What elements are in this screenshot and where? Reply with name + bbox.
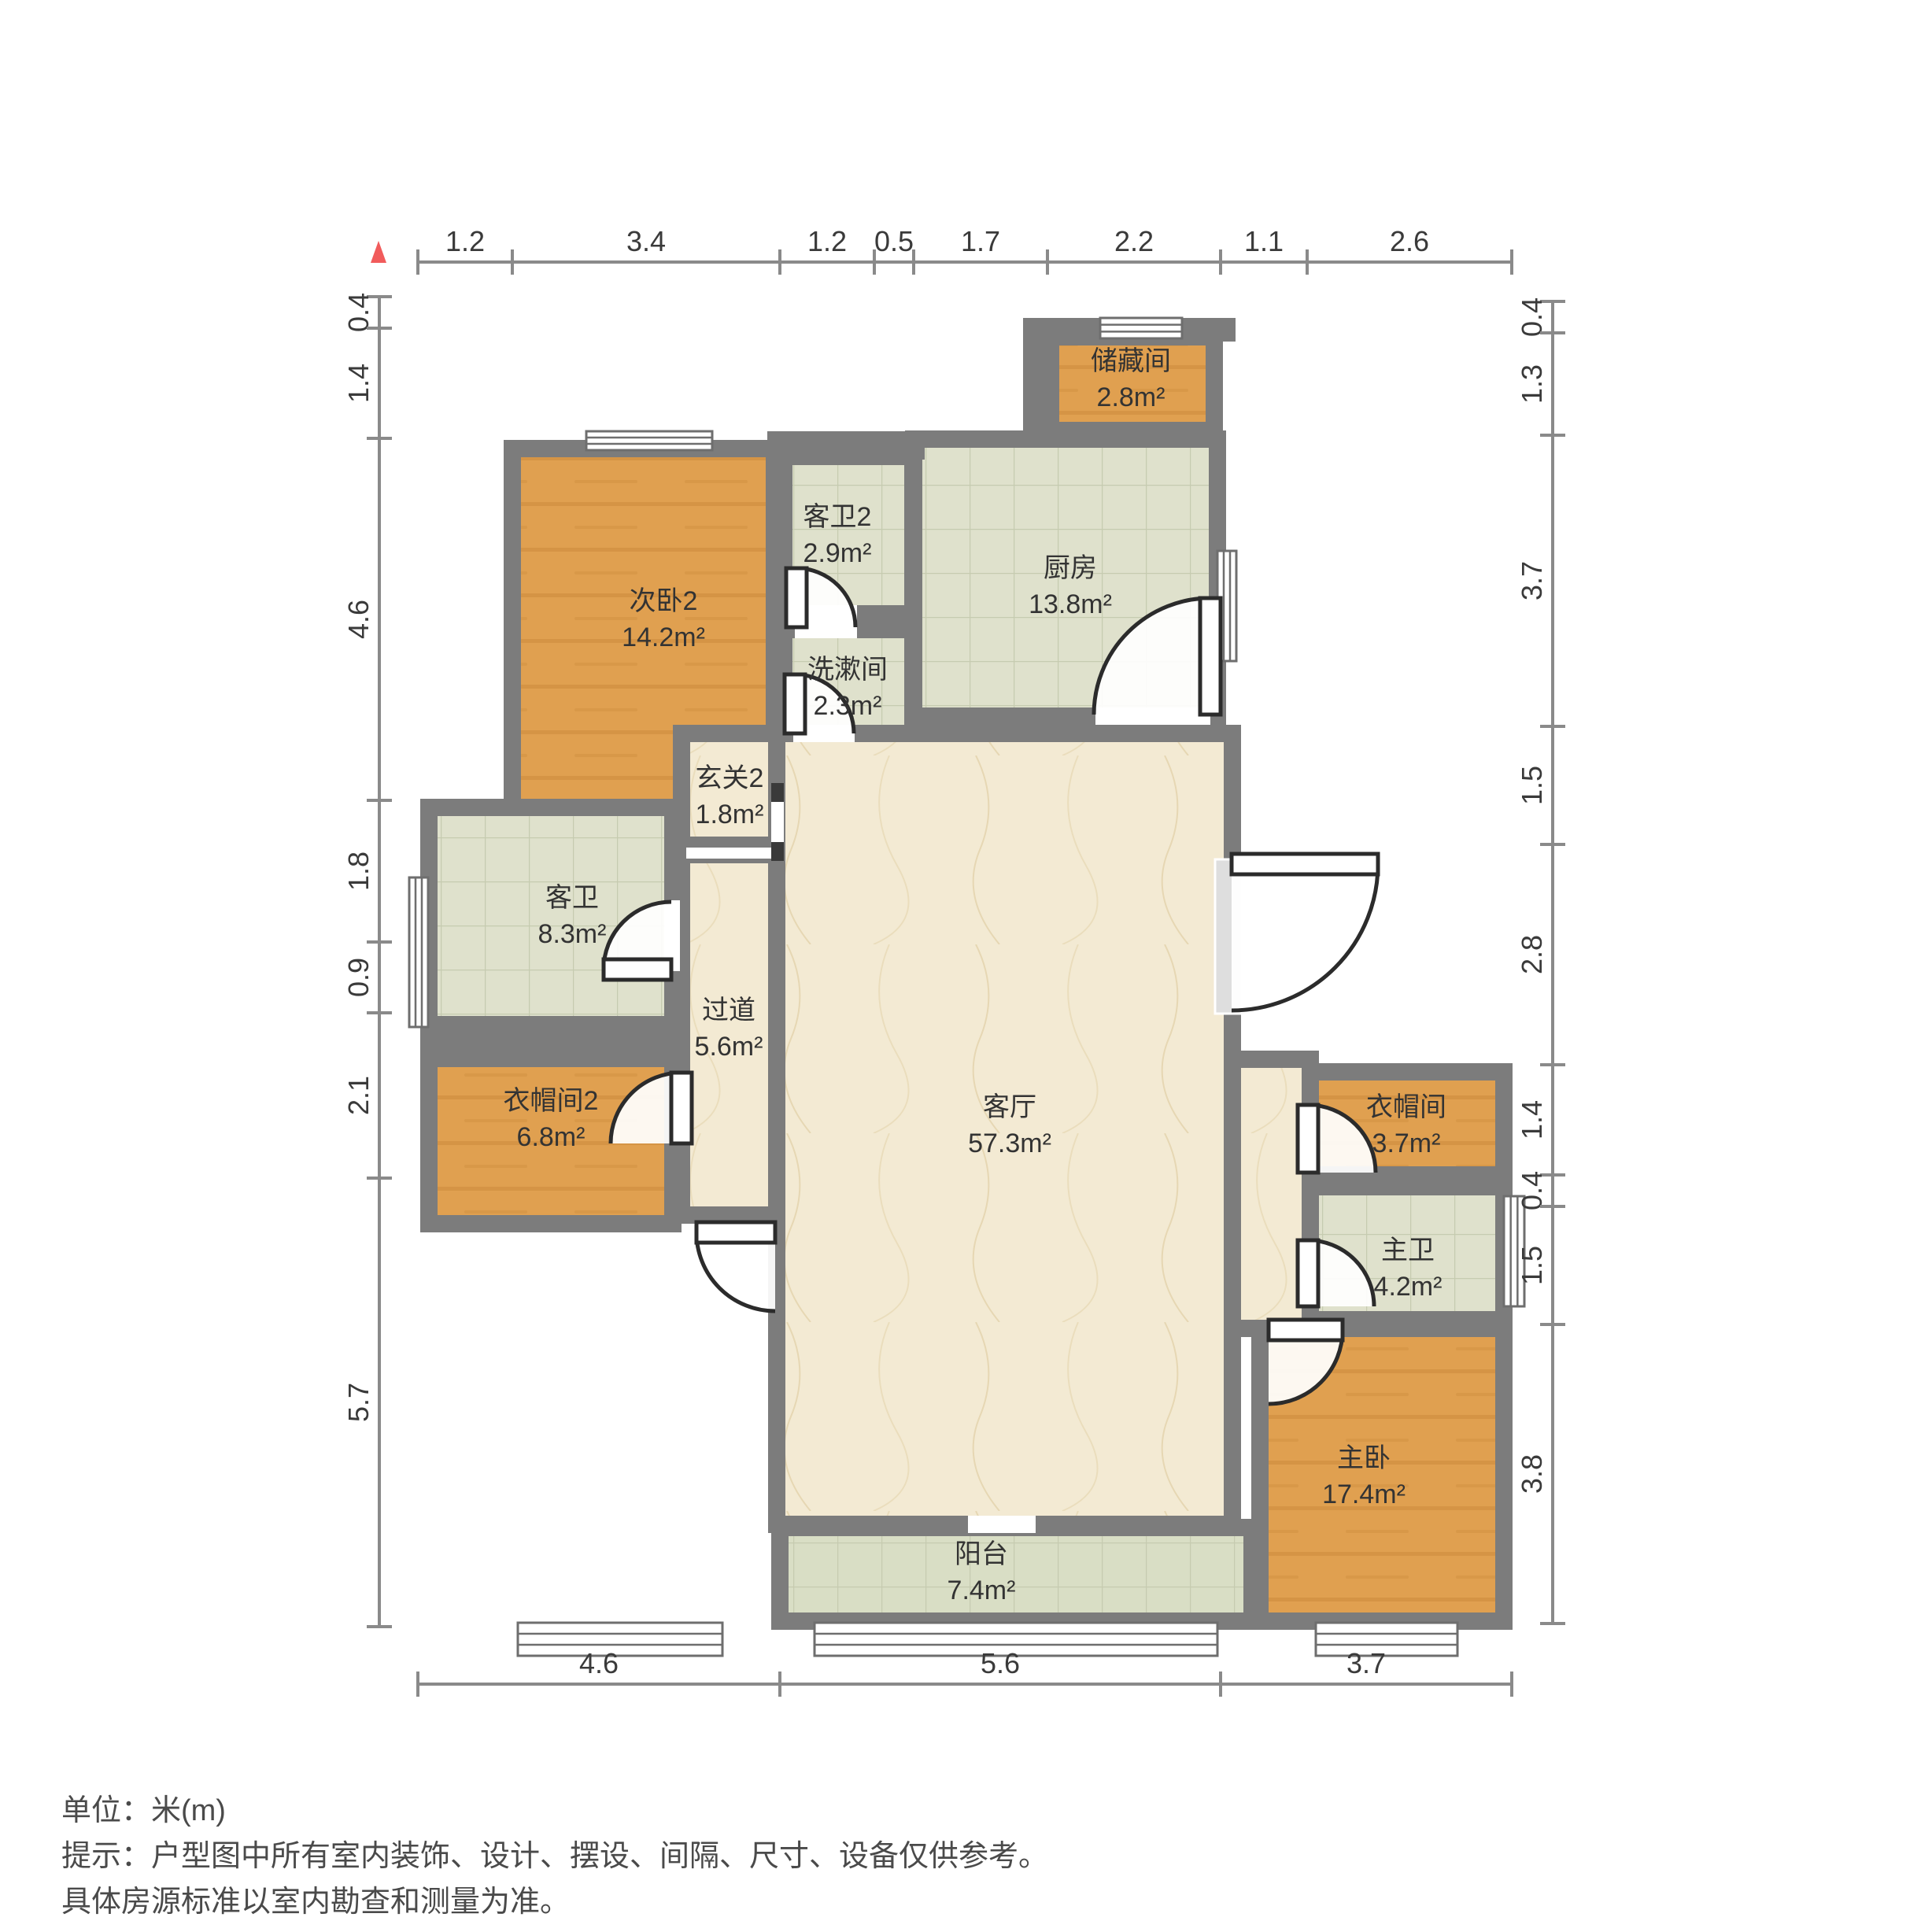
room-name-guodao: 过道 xyxy=(702,996,755,1025)
dim-label: 1.1 xyxy=(1244,225,1284,257)
room-area-xishujian: 2.3m² xyxy=(814,691,882,721)
dim-label: 3.8 xyxy=(1516,1454,1548,1494)
dim-label: 0.4 xyxy=(1516,1171,1548,1210)
room-name-xishujian: 洗漱间 xyxy=(807,655,888,685)
dim-chain-top: 1.23.41.20.51.72.21.12.6 xyxy=(418,225,1512,275)
room-area-kewei2: 2.9m² xyxy=(803,538,872,568)
room-yangtai xyxy=(780,1527,1252,1621)
dim-label: 1.4 xyxy=(342,364,375,403)
room-name-ciwo2: 次卧2 xyxy=(630,586,698,616)
window xyxy=(1100,318,1182,338)
room-name-kewei2: 客卫2 xyxy=(803,502,872,532)
floor-plan-svg: 次卧214.2m²客卫22.9m²洗漱间2.3m²储藏间2.8m²厨房13.8m… xyxy=(0,0,1932,1932)
dim-label: 0.4 xyxy=(342,293,375,332)
dim-label: 5.7 xyxy=(342,1383,375,1422)
window xyxy=(1316,1623,1457,1656)
dim-label: 2.2 xyxy=(1114,225,1154,257)
room-area-kewei: 8.3m² xyxy=(538,919,607,949)
dim-label: 5.6 xyxy=(981,1647,1020,1679)
dim-label: 2.1 xyxy=(342,1076,375,1115)
dim-label: 0.5 xyxy=(874,225,914,257)
dim-label: 1.4 xyxy=(1516,1100,1548,1140)
disclaimer-block: 单位：米(m) 提示：户型图中所有室内装饰、设计、摆设、间隔、尺寸、设备仅供参考… xyxy=(61,1788,1048,1925)
room-area-yimaojian: 3.7m² xyxy=(1372,1129,1441,1158)
dim-chain-right: 0.41.33.71.52.81.40.41.53.8 xyxy=(1516,297,1565,1624)
floor-plan-page: 次卧214.2m²客卫22.9m²洗漱间2.3m²储藏间2.8m²厨房13.8m… xyxy=(0,0,1932,1932)
room-name-yangtai: 阳台 xyxy=(955,1539,1008,1569)
room-area-zhuwo: 17.4m² xyxy=(1322,1479,1406,1509)
dim-label: 3.7 xyxy=(1346,1647,1386,1679)
dim-label: 1.8 xyxy=(342,851,375,891)
window xyxy=(518,1623,722,1656)
room-area-ciwo2: 14.2m² xyxy=(622,622,705,652)
room-area-zhuwei: 4.2m² xyxy=(1374,1272,1443,1302)
wall-patch xyxy=(1023,318,1055,436)
dim-label: 2.8 xyxy=(1516,935,1548,974)
dim-label: 4.6 xyxy=(342,600,375,639)
room-area-xuanguan2: 1.8m² xyxy=(696,800,764,829)
room-name-kewei: 客卫 xyxy=(545,883,599,913)
door-frame xyxy=(771,842,784,861)
room-area-chucangjian: 2.8m² xyxy=(1097,382,1165,412)
room-area-chufang: 13.8m² xyxy=(1029,589,1112,619)
tip-line-2: 具体房源标准以室内勘查和测量为准。 xyxy=(61,1879,1048,1925)
room-name-yimaojian: 衣帽间 xyxy=(1366,1092,1446,1122)
dim-label: 1.2 xyxy=(445,225,485,257)
north-arrow xyxy=(371,241,386,263)
door-ciwo xyxy=(696,1222,775,1311)
window xyxy=(586,431,712,450)
dim-label: 1.5 xyxy=(1516,1246,1548,1285)
room-area-guodao: 5.6m² xyxy=(695,1032,763,1062)
tip-line-1: 提示：户型图中所有室内装饰、设计、摆设、间隔、尺寸、设备仅供参考。 xyxy=(61,1834,1048,1879)
dim-label: 1.7 xyxy=(961,225,1000,257)
dim-label: 1.2 xyxy=(807,225,847,257)
plan-root: 次卧214.2m²客卫22.9m²洗漱间2.3m²储藏间2.8m²厨房13.8m… xyxy=(342,225,1565,1697)
door-frame xyxy=(771,783,784,802)
dim-label: 3.4 xyxy=(626,225,666,257)
room-name-chucangjian: 储藏间 xyxy=(1091,346,1171,376)
unit-note: 单位：米(m) xyxy=(61,1788,1048,1834)
wall-patch xyxy=(767,431,925,460)
room-name-chufang: 厨房 xyxy=(1044,553,1097,583)
room-name-xuanguan2: 玄关2 xyxy=(696,763,764,793)
dim-label: 0.9 xyxy=(342,958,375,997)
dim-label: 1.5 xyxy=(1516,766,1548,805)
dim-label: 1.3 xyxy=(1516,364,1548,404)
room-area-keting: 57.3m² xyxy=(968,1129,1051,1158)
room-name-zhuwo: 主卧 xyxy=(1337,1443,1391,1473)
door-gap xyxy=(771,800,784,844)
dim-label: 0.4 xyxy=(1516,297,1548,337)
window xyxy=(409,877,428,1027)
door-gap xyxy=(686,848,773,859)
dim-label: 3.7 xyxy=(1516,561,1548,600)
room-name-yimaojian2: 衣帽间2 xyxy=(504,1086,599,1116)
room-area-yimaojian2: 6.8m² xyxy=(517,1122,586,1152)
dim-label: 4.6 xyxy=(579,1647,619,1679)
room-name-keting: 客厅 xyxy=(983,1092,1036,1122)
room-area-yangtai: 7.4m² xyxy=(948,1576,1016,1605)
dim-chain-left: 0.41.44.61.80.92.15.7 xyxy=(342,293,392,1627)
wall-patch xyxy=(420,1016,682,1065)
room-name-zhuwei: 主卫 xyxy=(1381,1236,1435,1265)
door-entry xyxy=(1232,854,1378,1010)
dim-label: 2.6 xyxy=(1390,225,1429,257)
door-gap xyxy=(968,1516,1036,1533)
